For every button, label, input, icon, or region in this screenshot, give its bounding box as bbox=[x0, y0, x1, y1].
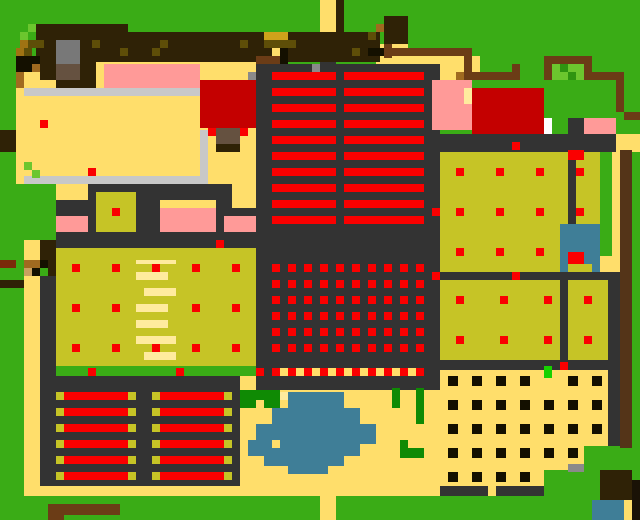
field-right-lower-right bbox=[568, 280, 608, 360]
red-marker bbox=[88, 368, 96, 376]
yard-yellow bbox=[232, 184, 256, 208]
fence-segment bbox=[616, 80, 624, 112]
tree-sw-cell bbox=[40, 260, 48, 268]
decor-cell bbox=[24, 48, 32, 56]
decor-cell bbox=[16, 72, 24, 80]
crop-dots-dense bbox=[352, 328, 360, 336]
fruit-dots-right-ll bbox=[544, 296, 552, 304]
gap-cell bbox=[488, 486, 496, 496]
crop-rows-bottom-left bbox=[64, 408, 128, 416]
leaf-cell bbox=[28, 24, 36, 32]
alt-strip-yellow bbox=[312, 368, 320, 376]
divider-right-v bbox=[560, 280, 568, 360]
crop-rows-bottom-left bbox=[128, 424, 136, 432]
red-marker bbox=[256, 368, 264, 376]
crop-dots-dense bbox=[352, 312, 360, 320]
seed-dots-bottom-right bbox=[544, 448, 554, 458]
crop-dots-dense bbox=[368, 264, 376, 272]
fruit-dots-left-field bbox=[112, 264, 120, 272]
crop-rows-top bbox=[344, 216, 424, 224]
fruit-dots-left-field bbox=[152, 264, 160, 272]
cell-gray bbox=[248, 72, 256, 80]
crop-dots-dense bbox=[320, 344, 328, 352]
seed-dots-bottom-right bbox=[448, 424, 458, 434]
fruit-dots-right-ll bbox=[500, 296, 508, 304]
pale-dash bbox=[136, 260, 176, 264]
crop-dots-dense bbox=[352, 264, 360, 272]
ground-south-path bbox=[320, 496, 336, 520]
seaweed-strip bbox=[392, 388, 400, 408]
fruit-dots-left-field bbox=[192, 264, 200, 272]
bush-cell bbox=[560, 64, 568, 72]
crop-dots-dense bbox=[384, 328, 392, 336]
cell-dark bbox=[568, 118, 584, 134]
pond bbox=[288, 466, 328, 474]
decor-cell bbox=[280, 48, 288, 64]
fence-segment bbox=[592, 72, 624, 80]
pond bbox=[264, 456, 344, 466]
crop-rows-top bbox=[344, 104, 424, 112]
cell-yellow bbox=[624, 500, 632, 520]
seed-dots-bottom-right bbox=[448, 376, 458, 386]
seaweed-notch bbox=[256, 400, 264, 408]
seed-dots-bottom-right bbox=[520, 424, 530, 434]
seed-dots-bottom-right bbox=[496, 448, 506, 458]
red-marker bbox=[88, 168, 96, 176]
crop-dots-dense bbox=[368, 312, 376, 320]
alt-strip-red bbox=[288, 368, 296, 376]
red-marker bbox=[560, 362, 568, 370]
beehive-block bbox=[264, 32, 288, 40]
crop-dots-dense bbox=[272, 296, 280, 304]
farmhouse-left bbox=[200, 80, 256, 128]
edge-block-west bbox=[0, 130, 16, 152]
crop-rows-top bbox=[272, 200, 336, 208]
seed-dots-bottom-right bbox=[448, 448, 458, 458]
crop-rows-bottom-left bbox=[128, 408, 136, 416]
cell-orange bbox=[456, 72, 464, 80]
seed-dots-bottom-right bbox=[520, 400, 530, 410]
fruit-dots-right-upper bbox=[496, 248, 504, 256]
crop-dots-dense bbox=[416, 264, 424, 272]
alt-strip-red bbox=[400, 368, 408, 376]
fence-segment bbox=[392, 48, 472, 56]
decor-cell bbox=[28, 40, 44, 48]
fence-post bbox=[512, 64, 520, 72]
seed-dots-bottom-right bbox=[472, 448, 482, 458]
crop-dots-dense bbox=[336, 296, 344, 304]
crop-dots-dense bbox=[384, 296, 392, 304]
decor-cell bbox=[264, 40, 296, 48]
crop-rows-bottom-left bbox=[56, 440, 64, 448]
leaf-cell bbox=[24, 162, 32, 170]
decor-cell bbox=[16, 56, 40, 64]
crop-rows-top bbox=[344, 120, 424, 128]
tree-trunk bbox=[384, 44, 392, 58]
yard-yellow bbox=[56, 184, 88, 200]
red-block bbox=[568, 150, 584, 160]
crop-dots-dense bbox=[304, 312, 312, 320]
crop-dots-dense bbox=[384, 344, 392, 352]
crop-rows-bottom-left bbox=[160, 472, 224, 480]
fruit-dots-left-field bbox=[232, 344, 240, 352]
crop-rows-bottom-left bbox=[152, 392, 160, 400]
seed-dots-bottom-right bbox=[520, 376, 530, 386]
green-wedge bbox=[544, 470, 608, 496]
crop-rows-bottom-left bbox=[160, 440, 224, 448]
border-left-col bbox=[40, 276, 56, 376]
pond-island bbox=[272, 440, 280, 448]
fruit-dots-right-upper bbox=[576, 208, 584, 216]
fruit-dots-right-ll bbox=[456, 296, 464, 304]
red-marker bbox=[512, 272, 520, 280]
crop-dots-dense bbox=[400, 280, 408, 288]
fruit-dots-left-field bbox=[72, 344, 80, 352]
fruit-dots-left-field bbox=[112, 304, 120, 312]
fruit-dots-left-field bbox=[72, 304, 80, 312]
crop-dots-dense bbox=[368, 344, 376, 352]
corridor-top bbox=[424, 134, 616, 152]
log-bottom-left bbox=[48, 504, 64, 520]
fruit-dots-right-upper bbox=[456, 208, 464, 216]
farm-map[interactable] bbox=[0, 0, 640, 520]
shrine-base bbox=[216, 144, 240, 152]
fruit-dots-left-field bbox=[192, 304, 200, 312]
fruit-dots-right-upper bbox=[496, 208, 504, 216]
fruit-dots-right-upper bbox=[456, 248, 464, 256]
cell-pale bbox=[464, 88, 472, 104]
crop-rows-top bbox=[272, 152, 336, 160]
alt-strip-red bbox=[272, 368, 280, 376]
barn-right bbox=[472, 88, 544, 134]
leaf-cell bbox=[32, 170, 40, 178]
chimney-base bbox=[56, 64, 80, 80]
alt-strip-yellow bbox=[360, 368, 368, 376]
water-trough-leg bbox=[560, 264, 568, 272]
crop-rows-bottom-left bbox=[152, 408, 160, 416]
seed-dots-bottom-right bbox=[472, 376, 482, 386]
crop-dots-dense bbox=[352, 344, 360, 352]
crop-rows-bottom-left bbox=[56, 472, 64, 480]
fruit-dots-right-lr bbox=[584, 336, 592, 344]
divider-right-h bbox=[440, 272, 620, 280]
crop-dots-dense bbox=[288, 264, 296, 272]
crop-rows-bottom-left bbox=[224, 408, 232, 416]
seed-dots-bottom-right bbox=[472, 424, 482, 434]
crop-dots-dense bbox=[400, 312, 408, 320]
fence-segment bbox=[464, 56, 472, 80]
crop-dots-dense bbox=[288, 280, 296, 288]
walkway-vertical bbox=[200, 130, 208, 176]
ground-right-cell bbox=[600, 256, 612, 272]
pale-dash bbox=[136, 304, 168, 312]
seed-dots-bottom-right bbox=[544, 424, 554, 434]
crop-dots-dense bbox=[288, 344, 296, 352]
crop-dots-dense bbox=[272, 312, 280, 320]
alt-strip-yellow bbox=[328, 368, 336, 376]
crop-rows-bottom-left bbox=[224, 424, 232, 432]
crop-rows-top bbox=[344, 168, 424, 176]
crop-rows-bottom-left bbox=[64, 424, 128, 432]
shrine-flag bbox=[240, 128, 248, 136]
seed-dots-bottom-right bbox=[496, 472, 506, 482]
seed-dots-bottom-right bbox=[496, 400, 506, 410]
decor-cell bbox=[240, 40, 248, 48]
crop-rows-top bbox=[272, 216, 336, 224]
fence-segment bbox=[472, 72, 520, 80]
decor-cell bbox=[120, 48, 128, 56]
red-marker bbox=[176, 368, 184, 376]
crop-rows-bottom-left bbox=[56, 392, 64, 400]
seed-dots-bottom-right bbox=[520, 448, 530, 458]
fruit-dots-left-field bbox=[232, 304, 240, 312]
crop-dots-dense bbox=[368, 280, 376, 288]
bush-cell bbox=[568, 72, 576, 80]
fruit-dots-right-upper bbox=[496, 168, 504, 176]
ground-right-col bbox=[612, 150, 620, 272]
water-southeast bbox=[592, 500, 624, 520]
crop-dots-dense bbox=[336, 280, 344, 288]
strip-right-lower bbox=[608, 280, 620, 446]
red-marker bbox=[432, 208, 440, 216]
crop-rows-bottom-left bbox=[128, 456, 136, 464]
crop-rows-top bbox=[272, 104, 336, 112]
shrine-body bbox=[216, 128, 240, 144]
crop-rows-bottom-left bbox=[160, 456, 224, 464]
seed-dots-bottom-right bbox=[568, 448, 578, 458]
alt-strip-yellow bbox=[408, 368, 416, 376]
crop-dots-dense bbox=[384, 280, 392, 288]
pink-terrace-far bbox=[584, 118, 616, 134]
seed-dots-bottom-right bbox=[592, 424, 602, 434]
leaf-cell bbox=[20, 32, 28, 40]
crop-dots-dense bbox=[384, 264, 392, 272]
ground-bottom-left-strip bbox=[40, 486, 240, 496]
pink-terrace-main bbox=[104, 64, 200, 88]
crop-rows-top bbox=[344, 184, 424, 192]
decor-cell bbox=[32, 64, 40, 72]
red-marker bbox=[512, 142, 520, 150]
decor-cell bbox=[160, 40, 168, 48]
crop-rows-top bbox=[272, 168, 336, 176]
fruit-dots-right-upper bbox=[456, 168, 464, 176]
alt-strip-red bbox=[304, 368, 312, 376]
crop-dots-dense bbox=[272, 344, 280, 352]
crop-rows-top bbox=[272, 120, 336, 128]
alt-strip-red bbox=[416, 368, 424, 376]
crop-dots-dense bbox=[400, 296, 408, 304]
fence-segment bbox=[544, 64, 552, 80]
crop-rows-bottom-left bbox=[56, 424, 64, 432]
alt-strip-yellow bbox=[280, 368, 288, 376]
crop-rows-bottom-left bbox=[128, 392, 136, 400]
fruit-dots-right-upper bbox=[536, 168, 544, 176]
crop-dots-dense bbox=[304, 328, 312, 336]
pale-dash bbox=[144, 352, 176, 360]
crop-dots-dense bbox=[272, 328, 280, 336]
decor-cell bbox=[272, 48, 280, 56]
pond bbox=[288, 392, 344, 408]
crop-rows-bottom-left bbox=[56, 456, 64, 464]
decor-cell bbox=[256, 56, 280, 64]
shed-southeast bbox=[600, 470, 632, 500]
seaweed-strip bbox=[416, 388, 424, 424]
crop-dots-dense bbox=[416, 280, 424, 288]
crop-dots-dense bbox=[288, 296, 296, 304]
yard-yellow bbox=[160, 200, 216, 208]
crop-rows-top bbox=[272, 88, 336, 96]
pale-dash bbox=[144, 288, 176, 296]
decor-cell bbox=[16, 48, 24, 56]
seed-dots-bottom-right bbox=[472, 472, 482, 482]
band-right-bottom bbox=[440, 360, 620, 370]
crop-rows-bottom-left bbox=[160, 392, 224, 400]
decor-cell bbox=[20, 40, 28, 48]
crop-rows-top bbox=[344, 152, 424, 160]
seaweed-l bbox=[400, 448, 424, 458]
walkway-b bbox=[24, 176, 208, 184]
yard-pink bbox=[160, 208, 216, 232]
crop-rows-bottom-left bbox=[128, 440, 136, 448]
tree-canopy bbox=[384, 16, 408, 44]
crop-rows-bottom-left bbox=[224, 456, 232, 464]
crop-dots-dense bbox=[336, 264, 344, 272]
seed-dots-bottom-right bbox=[568, 376, 578, 386]
tree-sw-cell bbox=[0, 260, 16, 268]
fruit-dots-left-field bbox=[112, 344, 120, 352]
roof-under-chimney bbox=[56, 80, 96, 88]
tree-sw-cell bbox=[24, 260, 40, 268]
seed-dots-bottom-right bbox=[448, 472, 458, 482]
pale-dash bbox=[136, 320, 168, 328]
crop-rows-bottom-left bbox=[128, 472, 136, 480]
crop-rows-bottom-left bbox=[152, 472, 160, 480]
alt-strip-red bbox=[336, 368, 344, 376]
fruit-dots-right-lr bbox=[584, 296, 592, 304]
walkway-a bbox=[24, 88, 200, 96]
fruit-dots-left-field bbox=[192, 344, 200, 352]
fruit-dots-right-ll bbox=[544, 336, 552, 344]
crop-rows-top bbox=[272, 184, 336, 192]
tree-sw bbox=[40, 240, 56, 260]
crop-rows-top bbox=[344, 136, 424, 144]
decor-cell bbox=[16, 64, 32, 72]
crop-rows-bottom-left bbox=[224, 392, 232, 400]
crop-rows-bottom-left bbox=[160, 424, 224, 432]
crop-rows-bottom-left bbox=[64, 392, 128, 400]
wall-east bbox=[620, 150, 632, 448]
decor-cell bbox=[152, 48, 160, 56]
fruit-dots-right-upper bbox=[576, 168, 584, 176]
sprout-cell bbox=[544, 366, 552, 378]
fence-segment bbox=[544, 56, 592, 64]
yard-pink bbox=[224, 216, 256, 232]
fruit-dots-right-upper bbox=[536, 248, 544, 256]
crop-dots-dense bbox=[320, 328, 328, 336]
crop-dots-dense bbox=[352, 280, 360, 288]
seed-dots-bottom-right bbox=[568, 424, 578, 434]
crop-rows-bottom-left bbox=[224, 440, 232, 448]
pond bbox=[248, 440, 360, 456]
roof-ext-1 bbox=[40, 62, 56, 80]
cell-gray bbox=[312, 64, 320, 72]
alt-strip-yellow bbox=[392, 368, 400, 376]
crop-dots-dense bbox=[304, 296, 312, 304]
crop-dots-dense bbox=[304, 344, 312, 352]
pale-dash bbox=[136, 272, 168, 280]
crop-dots-dense bbox=[304, 264, 312, 272]
crop-dots-dense bbox=[320, 312, 328, 320]
crop-dots-dense bbox=[288, 328, 296, 336]
alt-strip-yellow bbox=[344, 368, 352, 376]
tree-sw-cell bbox=[48, 260, 56, 276]
barn-door bbox=[544, 118, 552, 134]
fence-segment bbox=[624, 112, 640, 120]
crop-dots-dense bbox=[272, 264, 280, 272]
crop-dots-dense bbox=[304, 280, 312, 288]
crop-rows-bottom-left bbox=[64, 472, 128, 480]
alt-strip-yellow bbox=[376, 368, 384, 376]
decor-cell bbox=[352, 48, 360, 56]
seed-dots-bottom-right bbox=[544, 400, 554, 410]
decor-cell bbox=[368, 32, 376, 40]
fruit-dots-left-field bbox=[152, 344, 160, 352]
pale-dash bbox=[136, 336, 176, 344]
seed-dots-bottom-right bbox=[592, 376, 602, 386]
alt-strip-red bbox=[384, 368, 392, 376]
seed-dots-bottom-right bbox=[592, 400, 602, 410]
fruit-dots-left-field bbox=[72, 264, 80, 272]
cell-yellow bbox=[248, 64, 256, 72]
crop-dots-dense bbox=[368, 328, 376, 336]
crop-rows-bottom-left bbox=[152, 424, 160, 432]
crop-dots-dense bbox=[336, 312, 344, 320]
seed-dots-bottom-right bbox=[520, 472, 530, 482]
alt-strip-red bbox=[352, 368, 360, 376]
seed-dots-bottom-right bbox=[496, 376, 506, 386]
crop-dots-dense bbox=[320, 264, 328, 272]
tree-sw-branch bbox=[0, 280, 24, 288]
seed-dots-bottom-right bbox=[568, 400, 578, 410]
chimney bbox=[56, 40, 80, 64]
crop-rows-bottom-left bbox=[152, 440, 160, 448]
decor-cell bbox=[92, 40, 100, 48]
fruit-dots-right-upper bbox=[536, 208, 544, 216]
crop-dots-dense bbox=[336, 344, 344, 352]
crop-dots-dense bbox=[336, 328, 344, 336]
shed-shadow bbox=[632, 480, 640, 520]
crop-dots-dense bbox=[400, 264, 408, 272]
crop-dots-dense bbox=[416, 328, 424, 336]
tree-sw-cell bbox=[32, 268, 40, 276]
crop-rows-bottom-left bbox=[56, 408, 64, 416]
plot-main bbox=[256, 64, 440, 390]
band-bottom-right bbox=[440, 486, 552, 496]
fruit-dots-right-ll bbox=[500, 336, 508, 344]
crop-dots-dense bbox=[320, 280, 328, 288]
field-right-lower-left bbox=[440, 280, 560, 360]
decor-cell bbox=[16, 80, 24, 88]
crop-dots-dense bbox=[352, 296, 360, 304]
crop-dots-dense bbox=[400, 344, 408, 352]
seed-dots-bottom-right bbox=[472, 400, 482, 410]
crop-dots-dense bbox=[416, 344, 424, 352]
crop-dots-dense bbox=[400, 328, 408, 336]
crop-rows-top bbox=[272, 136, 336, 144]
red-block bbox=[568, 252, 584, 264]
red-marker bbox=[216, 240, 224, 248]
crop-dots-dense bbox=[416, 296, 424, 304]
